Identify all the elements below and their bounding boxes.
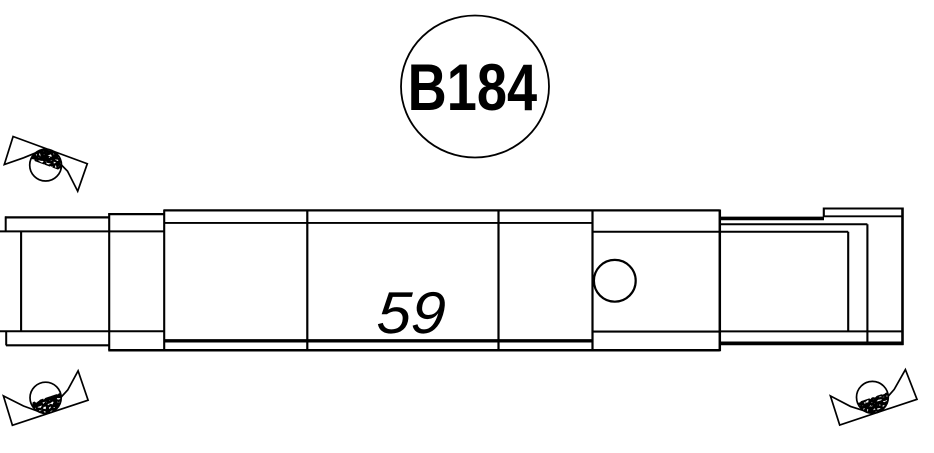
svg-text:59: 59 <box>375 279 448 346</box>
svg-text:B184: B184 <box>408 50 538 124</box>
